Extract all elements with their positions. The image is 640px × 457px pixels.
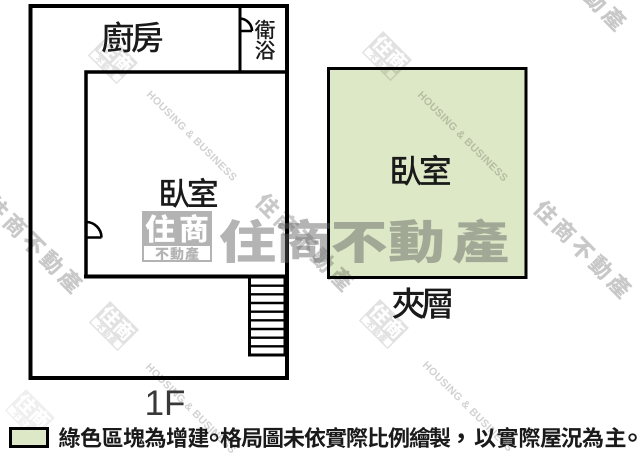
- svg-text:1F: 1F: [145, 384, 186, 423]
